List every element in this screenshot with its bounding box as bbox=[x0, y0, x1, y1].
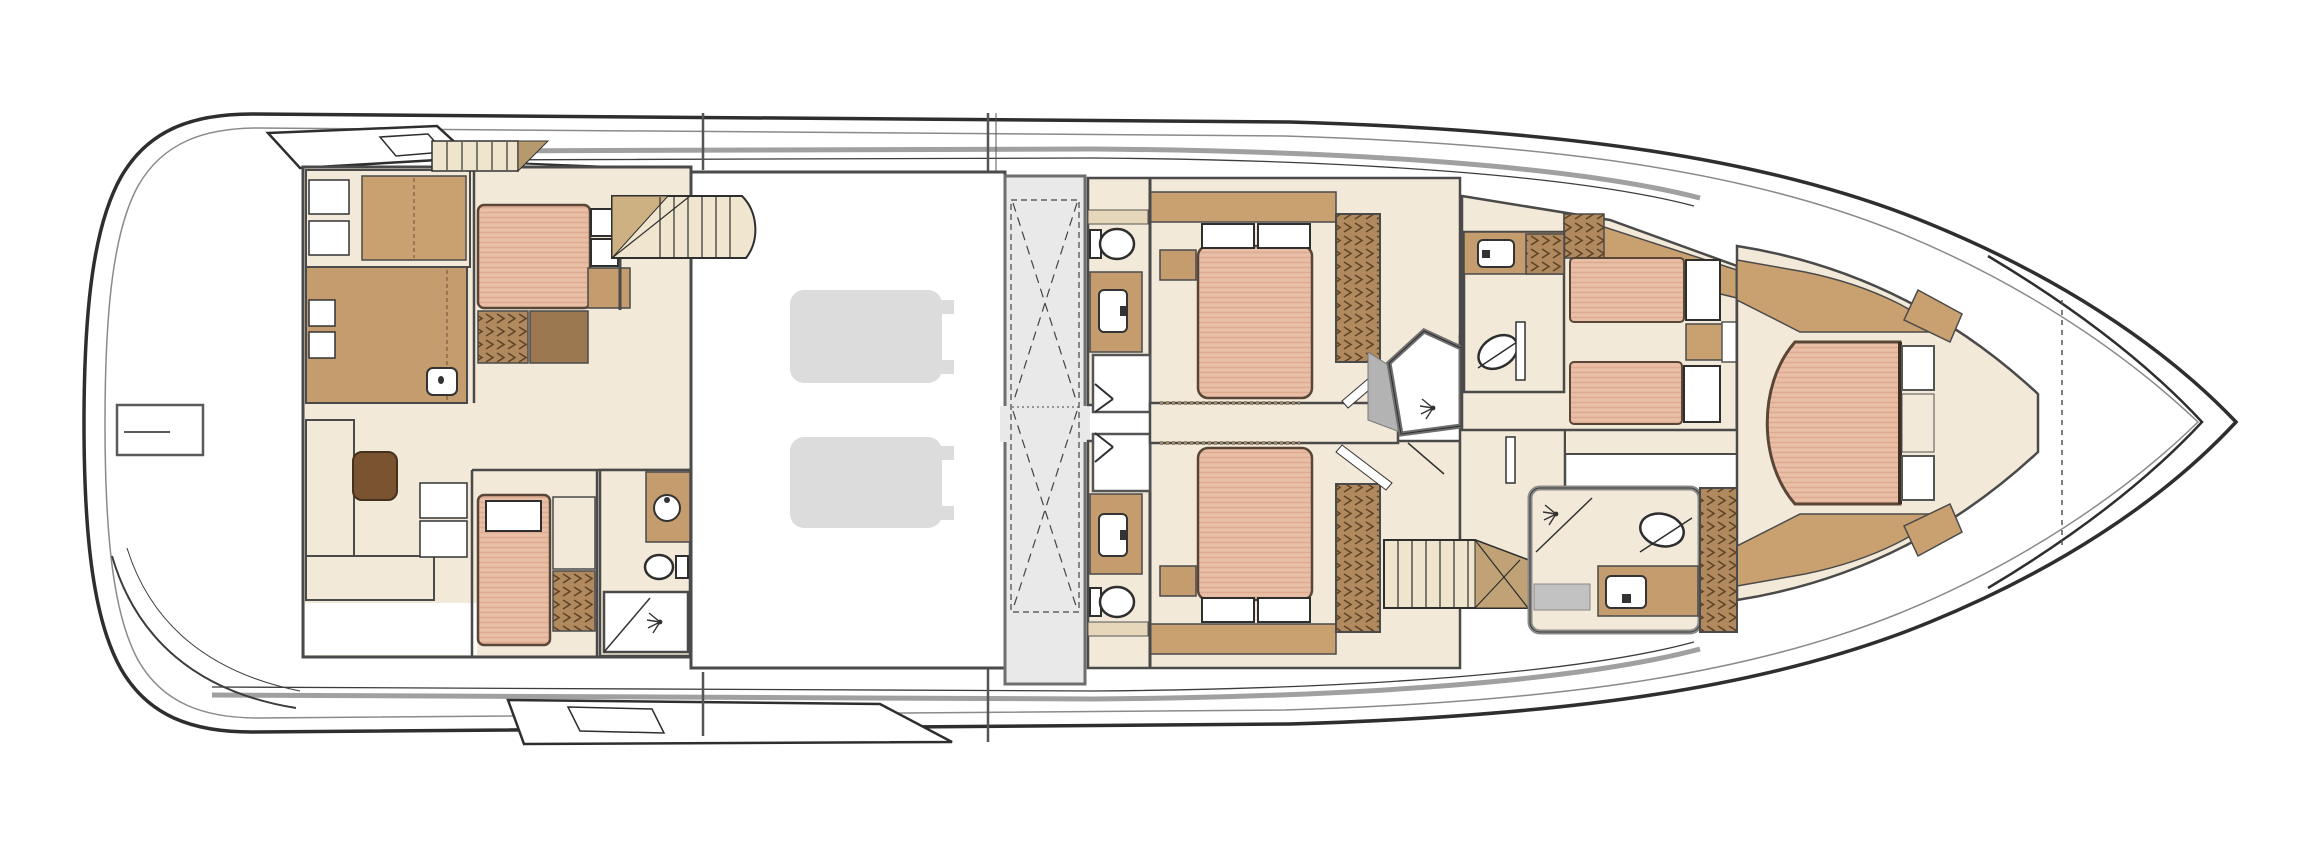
mess-table bbox=[353, 452, 397, 500]
engine-stbd bbox=[790, 437, 942, 528]
corridor bbox=[1150, 403, 1398, 443]
crew-bath-toilet-tank bbox=[676, 556, 688, 578]
galley-window-1 bbox=[309, 180, 349, 214]
twin-pillow-2 bbox=[1684, 366, 1720, 422]
twin-hull-window bbox=[1722, 322, 1737, 362]
vip-nightstand-2 bbox=[1902, 456, 1934, 500]
vip-bath-wardrobe bbox=[1700, 488, 1737, 632]
guest-port-bed bbox=[1198, 246, 1312, 398]
vip-bath-step bbox=[1534, 584, 1590, 610]
floorplan-page bbox=[0, 0, 2317, 846]
guest-stbd-wardrobe bbox=[1336, 484, 1380, 632]
engine-stbd-tab-2 bbox=[938, 506, 954, 520]
crew-cabin-aft-wardrobe bbox=[478, 311, 528, 363]
twin-pillow-1 bbox=[1686, 260, 1720, 320]
guest-port-shower bbox=[1093, 355, 1150, 412]
guest-stbd-faucet bbox=[1120, 530, 1127, 540]
twin-wardrobe bbox=[1564, 214, 1604, 258]
crew-bath-faucet bbox=[664, 497, 670, 503]
engine-port-tab-2 bbox=[938, 360, 954, 374]
guest-port-pillow-2 bbox=[1258, 224, 1310, 248]
crew-cabin-aft-closet bbox=[530, 311, 588, 363]
crew-cabin-fwd-pillow bbox=[486, 501, 541, 531]
fwd-bath-port-wardrobe bbox=[1526, 234, 1564, 274]
guest-port-faucet bbox=[1120, 306, 1127, 316]
twin-bed-1 bbox=[1570, 258, 1684, 322]
vip-bath-faucet bbox=[1622, 594, 1631, 603]
guest-stbd-shower bbox=[1093, 434, 1150, 491]
engine-stbd-tab-1 bbox=[938, 446, 954, 460]
galley-locker-2 bbox=[309, 332, 335, 358]
tank-door-fwd bbox=[1080, 406, 1090, 442]
engine-port-tab-1 bbox=[938, 300, 954, 314]
guest-port-wardrobe bbox=[1336, 214, 1380, 362]
crew-cabin-fwd-wardrobe bbox=[553, 571, 595, 631]
vip-door bbox=[1506, 437, 1515, 483]
crew-cabin-fwd-closet bbox=[553, 497, 595, 569]
guest-stbd-toilet bbox=[1100, 587, 1134, 617]
guest-stbd-bath-shelf bbox=[1088, 622, 1148, 636]
tank-door-aft bbox=[1000, 406, 1010, 442]
guest-port-nightstand bbox=[1160, 250, 1196, 280]
vip-bed bbox=[1767, 342, 1900, 504]
galley-sink-faucet bbox=[438, 376, 444, 384]
tank-corridor bbox=[1005, 176, 1085, 684]
guest-stbd-nightstand bbox=[1160, 566, 1196, 596]
mess-locker-1 bbox=[420, 483, 467, 518]
mess-bench-side bbox=[306, 420, 354, 558]
guest-stbd-pillow-1 bbox=[1202, 598, 1254, 622]
vip-nightstand-1 bbox=[1902, 346, 1934, 390]
galley-locker-1 bbox=[309, 300, 335, 326]
mess-locker-2 bbox=[420, 521, 467, 557]
floorplan-canvas bbox=[0, 0, 2317, 846]
guest-stbd-headshelf bbox=[1150, 624, 1336, 654]
guest-port-headshelf bbox=[1150, 192, 1336, 222]
crew-cabin-aft-cabinet bbox=[588, 268, 630, 308]
crew-bath-shower bbox=[604, 592, 688, 652]
guest-stbd-pillow-2 bbox=[1258, 598, 1310, 622]
crew-cabin-aft-bed bbox=[478, 205, 590, 308]
guest-port-toilet bbox=[1100, 229, 1134, 259]
crew-bath-toilet bbox=[645, 555, 673, 579]
mess-bench-aft bbox=[306, 556, 434, 600]
galley-window-2 bbox=[309, 221, 349, 255]
vip-headboard-mid bbox=[1902, 394, 1934, 452]
guest-port-pillow-1 bbox=[1202, 224, 1254, 248]
fwd-bath-port-faucet bbox=[1482, 250, 1490, 258]
engine-port bbox=[790, 290, 942, 383]
guest-stbd-bed bbox=[1198, 448, 1312, 600]
fwd-bath-port-door bbox=[1516, 322, 1525, 380]
crew-void bbox=[305, 603, 477, 655]
vip-bath-basin bbox=[1606, 576, 1646, 608]
side-steps bbox=[432, 141, 518, 171]
floorplan-shapes bbox=[84, 113, 2236, 744]
twin-bed-2 bbox=[1570, 362, 1682, 424]
stern-platform-notch bbox=[117, 405, 203, 455]
guest-port-bath-shelf bbox=[1088, 210, 1148, 224]
